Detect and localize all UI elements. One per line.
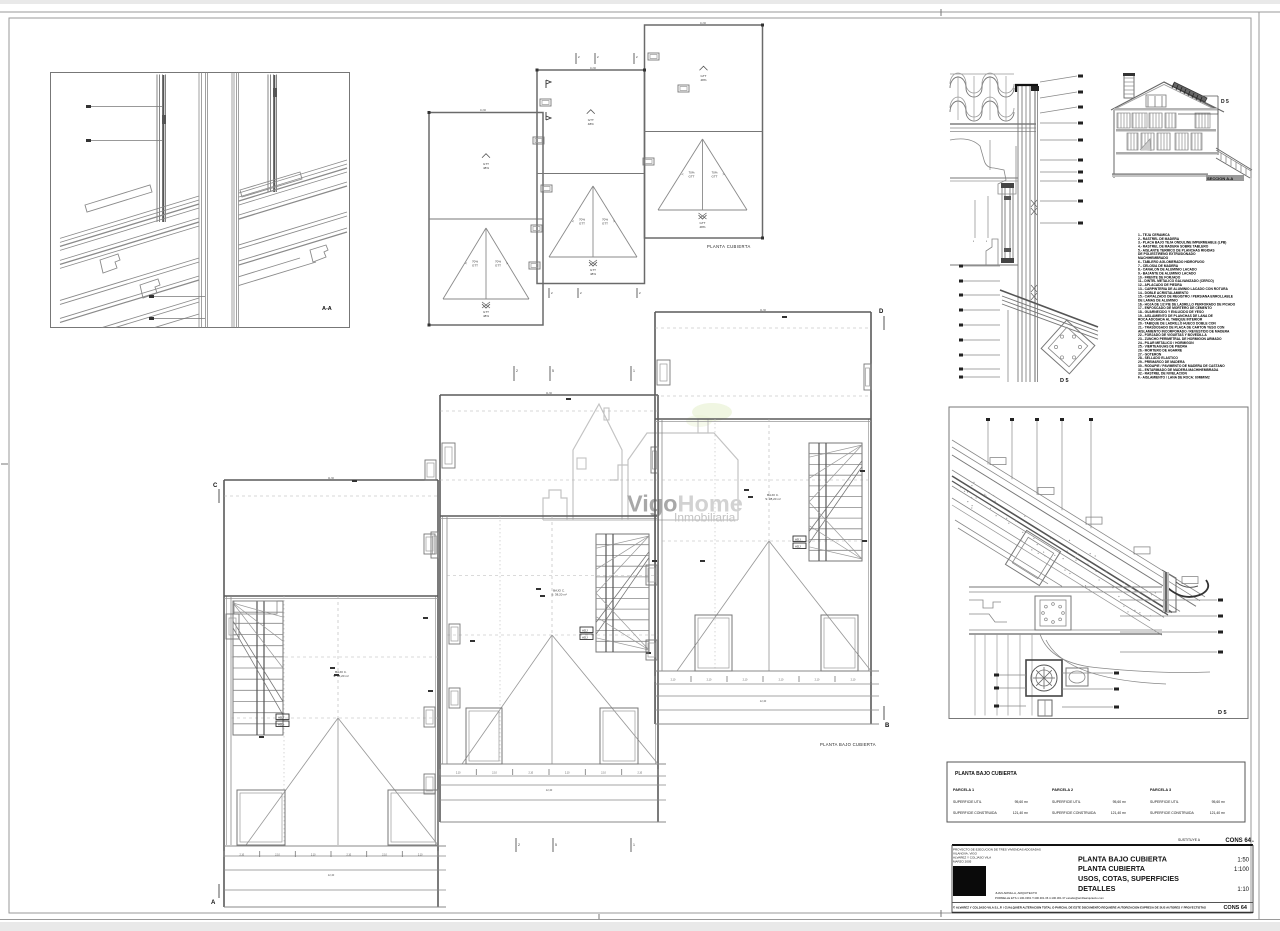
svg-text:2,10: 2,10 xyxy=(382,854,387,857)
svg-text:121,40 m²: 121,40 m² xyxy=(1210,811,1226,815)
svg-text:SUPERFICIE UTIL: SUPERFICIE UTIL xyxy=(953,800,982,804)
svg-text:PLANTA BAJO CUBIERTA: PLANTA BAJO CUBIERTA xyxy=(955,771,1017,777)
svg-text:SUPERFICIE CONSTRUIDA: SUPERFICIE CONSTRUIDA xyxy=(1150,811,1194,815)
svg-text:A: A xyxy=(211,900,216,906)
svg-text:1: 1 xyxy=(633,843,635,847)
svg-text:2,10: 2,10 xyxy=(528,772,533,775)
svg-text:A-A: A-A xyxy=(322,306,332,312)
svg-text:USOS, COTAS, SUPERFICIES: USOS, COTAS, SUPERFICIES xyxy=(1078,874,1179,883)
svg-text:2,10: 2,10 xyxy=(671,679,676,682)
svg-text:Inmobiliaria: Inmobiliaria xyxy=(674,511,736,525)
svg-text:ADJ: ADJ xyxy=(582,629,588,633)
svg-text:C: C xyxy=(213,483,218,489)
svg-text:2,10: 2,10 xyxy=(346,854,351,857)
svg-text:11,60: 11,60 xyxy=(480,109,487,112)
svg-text:D 5: D 5 xyxy=(1060,378,1069,384)
svg-text:ADJ: ADJ xyxy=(278,723,284,727)
svg-text:2,10: 2,10 xyxy=(418,854,423,857)
svg-text:SUPERFICIE CONSTRUIDA: SUPERFICIE CONSTRUIDA xyxy=(1052,811,1096,815)
svg-text:2,10: 2,10 xyxy=(492,772,497,775)
svg-text:5: 5 xyxy=(552,369,554,373)
svg-text:SUPERFICIE UTIL: SUPERFICIE UTIL xyxy=(1052,800,1081,804)
svg-text:121,40 m²: 121,40 m² xyxy=(1111,811,1127,815)
svg-text:2,10: 2,10 xyxy=(743,679,748,682)
svg-text:D 5: D 5 xyxy=(1218,710,1227,716)
svg-text:2,10: 2,10 xyxy=(601,772,606,775)
svg-text:95,60 m²: 95,60 m² xyxy=(1113,800,1127,804)
svg-text:SECCION A-A: SECCION A-A xyxy=(1207,176,1233,181)
svg-text:2,10: 2,10 xyxy=(565,772,570,775)
svg-text:48%: 48% xyxy=(483,314,489,318)
svg-text:▪: ▪ xyxy=(986,239,987,243)
svg-text:S: 38,20 m²: S: 38,20 m² xyxy=(551,593,567,597)
svg-text:48%: 48% xyxy=(588,122,594,126)
svg-text:GTT: GTT xyxy=(689,175,695,179)
svg-text:11,60: 11,60 xyxy=(590,67,597,70)
svg-text:PLANTA CUBIERTA: PLANTA CUBIERTA xyxy=(1078,864,1145,873)
svg-text:PLANTA BAJO CUBIERTA: PLANTA BAJO CUBIERTA xyxy=(1078,855,1167,864)
svg-text:1:50: 1:50 xyxy=(1237,858,1249,864)
svg-text:2,10: 2,10 xyxy=(275,854,280,857)
svg-text:DETALLES: DETALLES xyxy=(1078,884,1116,893)
svg-text:121,40 m²: 121,40 m² xyxy=(1013,811,1029,815)
svg-text:12,40: 12,40 xyxy=(328,873,335,877)
svg-text:1:10: 1:10 xyxy=(1237,887,1249,893)
svg-text:2,10: 2,10 xyxy=(239,854,244,857)
svg-text:CONS 64: CONS 64 xyxy=(1225,838,1251,844)
svg-text:11,60: 11,60 xyxy=(760,309,767,312)
svg-text:MARZO 2005: MARZO 2005 xyxy=(953,860,972,864)
svg-text:PLANTA BAJO CUBIERTA: PLANTA BAJO CUBIERTA xyxy=(820,742,876,747)
svg-text:GTT: GTT xyxy=(712,175,718,179)
svg-text:D: D xyxy=(879,309,884,315)
svg-text:D 5: D 5 xyxy=(1221,99,1229,105)
svg-text:B: B xyxy=(885,723,890,729)
svg-text:SUPERFICIE UTIL: SUPERFICIE UTIL xyxy=(1150,800,1179,804)
svg-text:2,10: 2,10 xyxy=(779,679,784,682)
svg-text:PARCELA 3: PARCELA 3 xyxy=(1150,788,1171,792)
svg-text:PARCELA 2: PARCELA 2 xyxy=(1052,788,1073,792)
svg-text:CONS 64: CONS 64 xyxy=(1223,905,1247,911)
svg-text:GTT: GTT xyxy=(472,264,478,268)
svg-text:GTT: GTT xyxy=(602,222,608,226)
svg-text:GTT: GTT xyxy=(495,264,501,268)
svg-text:2,10: 2,10 xyxy=(311,854,316,857)
svg-text:48%: 48% xyxy=(590,272,596,276)
svg-text:48%: 48% xyxy=(483,166,489,170)
svg-text:SUSTITUYE A: SUSTITUYE A xyxy=(1178,838,1201,842)
svg-text:1: 1 xyxy=(633,369,635,373)
svg-text:48%: 48% xyxy=(699,225,705,229)
svg-text:95,60 m²: 95,60 m² xyxy=(1015,800,1029,804)
svg-text:ADJ: ADJ xyxy=(582,636,588,640)
svg-text:2,10: 2,10 xyxy=(851,679,856,682)
svg-text:ADJ: ADJ xyxy=(795,538,801,542)
svg-text:2,10: 2,10 xyxy=(707,679,712,682)
svg-text:11,60: 11,60 xyxy=(328,477,335,480)
svg-text:5: 5 xyxy=(555,843,557,847)
svg-text:2,10: 2,10 xyxy=(456,772,461,775)
svg-text:© ALVAREZ Y COLJASO VILA S.L.P: © ALVAREZ Y COLJASO VILA S.L.P. / CUALQU… xyxy=(953,906,1206,910)
svg-text:SUPERFICIE CONSTRUIDA: SUPERFICIE CONSTRUIDA xyxy=(953,811,997,815)
svg-text:11,60: 11,60 xyxy=(700,22,707,25)
svg-text:JUAN ARNILLA, ARQUITECTO: JUAN ARNILLA, ARQUITECTO xyxy=(995,891,1038,895)
svg-text:1:100: 1:100 xyxy=(1234,867,1250,873)
svg-text:S: 38,20 m²: S: 38,20 m² xyxy=(765,497,781,501)
svg-text:48%: 48% xyxy=(700,78,706,82)
svg-text:ADJ: ADJ xyxy=(278,716,284,720)
svg-text:2: 2 xyxy=(518,843,520,847)
svg-text:12,40: 12,40 xyxy=(760,699,767,703)
svg-text:GTT: GTT xyxy=(579,222,585,226)
svg-text:PORMELLE ETS.1 100-0361 T.4: PORMELLE ETS.1 100-0361 T.400.301.36 4.1… xyxy=(995,896,1104,900)
svg-text:2,10: 2,10 xyxy=(637,772,642,775)
svg-text:▪: ▪ xyxy=(973,239,974,243)
svg-text:F.- AISLAMIENTO / LANA DE ROCA: F.- AISLAMIENTO / LANA DE ROCA: 60MM/M2 xyxy=(1138,376,1210,380)
svg-text:11,60: 11,60 xyxy=(546,392,553,395)
svg-text:95,60 m²: 95,60 m² xyxy=(1212,800,1226,804)
svg-text:PLANTA CUBIERTA: PLANTA CUBIERTA xyxy=(707,244,751,249)
svg-text:12,40: 12,40 xyxy=(546,788,553,792)
svg-text:2,10: 2,10 xyxy=(815,679,820,682)
svg-text:2: 2 xyxy=(516,369,518,373)
svg-text:PARCELA 1: PARCELA 1 xyxy=(953,788,974,792)
svg-text:ADJ: ADJ xyxy=(795,545,801,549)
